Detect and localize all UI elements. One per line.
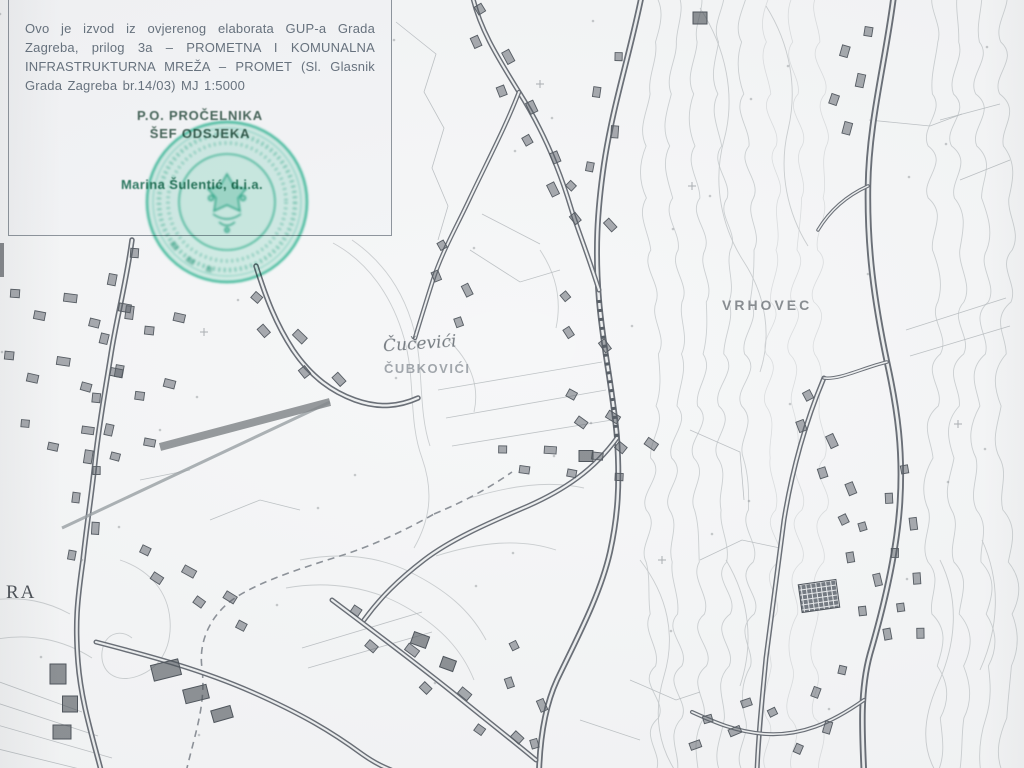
map-label-hamlet-caps: ČUBKOVIĆI: [384, 361, 470, 376]
scanned-map-page: Ovo je izvod iz ovjerenog elaborata GUP-…: [0, 0, 1024, 768]
map-label-vrhovec: VRHOVEC: [722, 297, 812, 313]
official-round-stamp-seal: [127, 102, 327, 302]
map-label-edge-partial: RA: [6, 582, 36, 604]
certification-text: Ovo je izvod iz ovjerenog elaborata GUP-…: [25, 19, 375, 95]
